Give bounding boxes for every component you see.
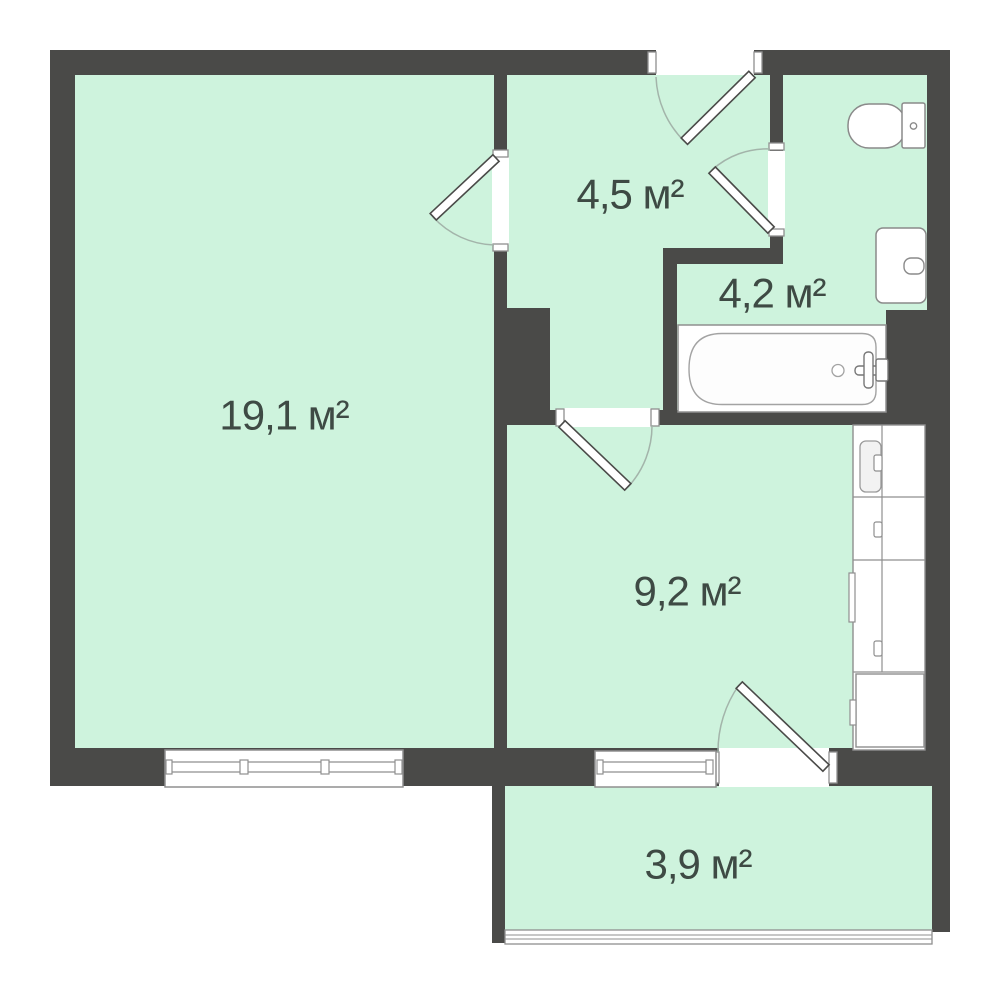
window-frame	[595, 751, 716, 787]
bathroom-door-jamb-top	[769, 143, 784, 150]
sink-faucet	[904, 258, 924, 274]
kitchen-counter	[849, 425, 925, 750]
living-room-door-opening	[492, 157, 509, 245]
living-room-window	[165, 750, 403, 787]
bathroom-sink	[876, 228, 926, 303]
wall-balcony-right	[932, 785, 950, 932]
wall-right-step	[886, 310, 950, 425]
glazing-frame	[505, 930, 932, 944]
wall-bathroom-lower	[663, 248, 783, 264]
toilet	[848, 103, 925, 148]
appliance-handle-bar	[850, 700, 856, 725]
bathtub-drain	[832, 365, 844, 377]
room-label-living-room: 19,1 м²	[219, 392, 349, 439]
entrance-jamb-left	[648, 52, 656, 73]
bathroom-door-opening	[768, 151, 785, 230]
kitchen-door-opening	[564, 408, 651, 427]
wall-right-bathroom	[927, 50, 950, 312]
wall-right-kitchen	[925, 412, 950, 786]
room-label-balcony: 3,9 м²	[645, 841, 753, 888]
wall-top-right	[754, 50, 950, 75]
kitchen-window	[595, 751, 716, 787]
floor-plan-drawing: 19,1 м² 4,5 м² 4,2 м² 9,2 м² 3,9 м²	[0, 0, 1000, 1000]
toilet-flush-button	[910, 123, 916, 129]
room-label-bathroom: 4,2 м²	[719, 270, 827, 317]
floor-plan-page: 19,1 м² 4,5 м² 4,2 м² 9,2 м² 3,9 м²	[0, 0, 1000, 1000]
room-label-hallway: 4,5 м²	[577, 171, 685, 218]
bathtub-inner	[689, 334, 876, 405]
wall-balcony-left	[492, 785, 505, 943]
room-label-kitchen: 9,2 м²	[634, 568, 742, 615]
living-room-door-jamb-bottom	[493, 244, 508, 251]
bathtub	[678, 325, 888, 412]
window-frame	[165, 750, 403, 787]
appliance-handle-bar	[849, 573, 855, 622]
entrance-jamb-right	[754, 52, 762, 73]
counter-end-appliance	[856, 674, 924, 747]
kitchen-door-jamb-right	[651, 409, 659, 426]
wall-left	[50, 50, 75, 786]
wall-core-block	[503, 308, 550, 425]
balcony-glazing	[505, 930, 932, 944]
wall-hallway-right	[663, 248, 677, 425]
wall-top-left	[50, 50, 656, 75]
toilet-bowl	[848, 104, 906, 148]
living-room-door-jamb-top	[493, 150, 508, 157]
balcony-door-jamb-right	[829, 752, 837, 783]
